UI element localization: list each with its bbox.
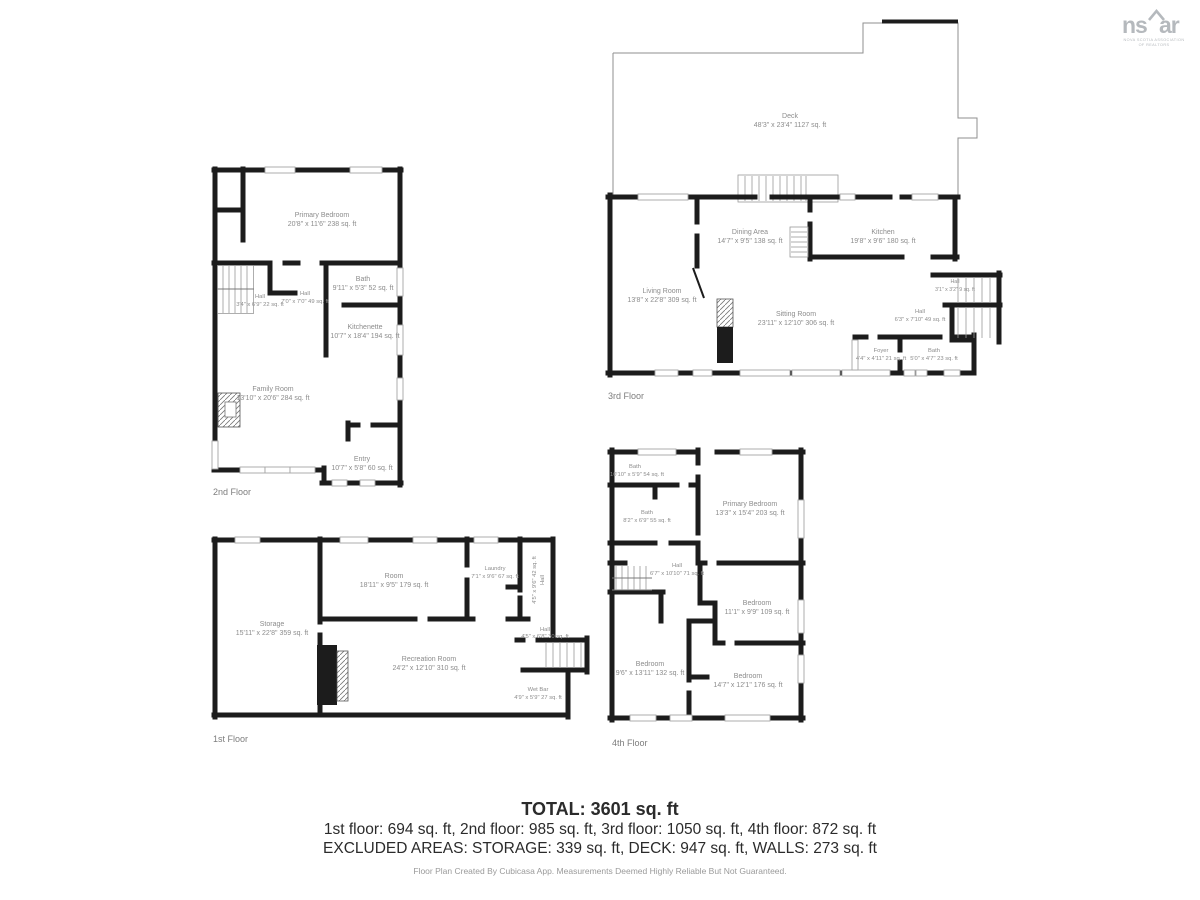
area-summary: TOTAL: 3601 sq. ft 1st floor: 694 sq. ft… <box>0 798 1200 858</box>
room-label: Bath <box>629 464 641 470</box>
second-floor-plan: Primary Bedroom 20'8" x 11'6" 238 sq. ft… <box>210 165 405 505</box>
third-floor-fireplace <box>717 299 733 363</box>
deck-top-rail <box>882 20 958 24</box>
room-dims: 4'5" x 6'8" 30 sq. ft <box>521 634 569 640</box>
room-label: Family Room <box>252 386 293 393</box>
room-label: Primary Bedroom <box>295 212 350 219</box>
room-label: Laundry <box>485 566 506 572</box>
room-dims: 4'5" x 9'6" 42 sq. ft <box>532 556 538 604</box>
room-dims: 18'11" x 9'5" 179 sq. ft <box>360 582 429 589</box>
room-label: Bedroom <box>734 673 763 680</box>
room-label: Hall <box>915 309 925 315</box>
room-dims: 48'3" x 23'4" 1127 sq. ft <box>754 122 827 129</box>
third-floor-room-labels: Deck 48'3" x 23'4" 1127 sq. ft Living Ro… <box>627 113 975 362</box>
room-dims: 8'2" x 6'9" 55 sq. ft <box>623 518 671 524</box>
total-area-text: TOTAL: 3601 sq. ft <box>0 798 1200 820</box>
deck-outline <box>613 23 977 196</box>
room-label: Foyer <box>874 348 889 354</box>
room-label: Kitchenette <box>347 324 382 331</box>
room-dims: 7'1" x 9'6" 67 sq. ft <box>471 574 519 580</box>
room-dims: 4'4" x 4'11" 21 sq. ft <box>856 356 907 362</box>
room-label: Hall <box>672 563 682 569</box>
room-dims: 13'3" x 15'4" 203 sq. ft <box>715 510 784 517</box>
fourth-floor-walls <box>610 450 803 720</box>
room-dims: 6'7" x 10'10" 71 sq. ft <box>650 571 704 577</box>
logo-text-ns: ns <box>1122 12 1147 38</box>
room-dims: 10'7" x 5'8" 60 sq. ft <box>331 465 392 472</box>
first-floor-plan: Storage 15'11" x 22'8" 359 sq. ft Room 1… <box>210 535 595 750</box>
room-label: Entry <box>354 456 371 463</box>
room-dims: 10'7" x 18'4" 194 sq. ft <box>330 333 399 340</box>
room-dims: 19'8" x 9'6" 180 sq. ft <box>850 238 915 245</box>
room-dims: 20'8" x 11'6" 238 sq. ft <box>288 221 357 228</box>
room-dims: 10'10" x 5'9" 54 sq. ft <box>610 472 664 478</box>
room-dims: 7'0" x 7'0" 49 sq. ft <box>281 299 329 305</box>
first-floor-label: 1st Floor <box>213 734 248 744</box>
room-dims: 9'6" x 13'11" 132 sq. ft <box>616 670 685 677</box>
fourth-floor-label: 4th Floor <box>612 738 648 748</box>
living-room-door <box>693 268 704 298</box>
room-label: Primary Bedroom <box>723 501 778 508</box>
room-label: Hall <box>255 294 265 300</box>
room-label: Sitting Room <box>776 311 816 318</box>
room-label: Kitchen <box>871 229 894 236</box>
fourth-floor-plan: Bath 10'10" x 5'9" 54 sq. ft Bath 8'2" x… <box>605 445 815 757</box>
third-floor-label: 3rd Floor <box>608 391 644 401</box>
room-dims: 15'11" x 22'8" 359 sq. ft <box>236 630 309 637</box>
disclaimer-text: Floor Plan Created By Cubicasa App. Meas… <box>0 866 1200 876</box>
room-label: Hall <box>540 575 546 585</box>
room-dims: 3'1" x 3'2" 9 sq. ft <box>935 287 975 293</box>
room-label: Storage <box>260 621 285 628</box>
fourth-floor-stairs <box>612 566 652 590</box>
room-label: Recreation Room <box>402 656 457 663</box>
room-label: Living Room <box>643 288 682 295</box>
room-dims: 14'7" x 12'1" 176 sq. ft <box>713 682 782 689</box>
excluded-areas-text: EXCLUDED AREAS: STORAGE: 339 sq. ft, DEC… <box>0 839 1200 858</box>
room-label: Room <box>385 573 404 580</box>
room-dims: 9'11" x 5'3" 52 sq. ft <box>333 285 394 292</box>
room-dims: 6'3" x 7'10" 49 sq. ft <box>895 317 946 323</box>
room-label: Bedroom <box>636 661 665 668</box>
room-label: Dining Area <box>732 229 768 236</box>
room-label: Bath <box>356 276 371 283</box>
floor-areas-text: 1st floor: 694 sq. ft, 2nd floor: 985 sq… <box>0 820 1200 839</box>
room-label: Bath <box>641 510 653 516</box>
room-label: Wet Bar <box>528 687 549 693</box>
first-floor-fireplace <box>317 645 348 705</box>
third-floor-walls <box>608 195 1000 375</box>
room-dims: 24'2" x 12'10" 310 sq. ft <box>392 665 465 672</box>
first-floor-stairs <box>546 642 581 668</box>
room-dims: 23'11" x 12'10" 306 sq. ft <box>758 320 834 327</box>
room-dims: 11'1" x 9'9" 109 sq. ft <box>725 609 790 616</box>
room-label: Hall <box>951 279 960 285</box>
room-label: Deck <box>782 113 798 120</box>
room-dims: 13'8" x 22'8" 309 sq. ft <box>627 297 696 304</box>
room-label: Hall <box>540 627 550 633</box>
logo-tagline-2: OF REALTORS <box>1139 43 1170 47</box>
room-dims: 13'10" x 20'6" 284 sq. ft <box>236 395 309 402</box>
room-label: Bath <box>928 348 940 354</box>
room-dims: 3'4" x 6'9" 22 sq. ft <box>236 302 284 308</box>
room-label: Bedroom <box>743 600 772 607</box>
logo-tagline-1: NOVA SCOTIA ASSOCIATION <box>1124 38 1185 42</box>
third-floor-plan: Deck 48'3" x 23'4" 1127 sq. ft Living Ro… <box>600 10 1010 405</box>
room-dims: 4'9" x 5'9" 27 sq. ft <box>514 695 562 701</box>
nsar-logo: ns ar NOVA SCOTIA ASSOCIATION OF REALTOR… <box>1112 6 1198 52</box>
logo-text-ar: ar <box>1159 12 1180 38</box>
floor-plan-page: ns ar NOVA SCOTIA ASSOCIATION OF REALTOR… <box>0 0 1200 900</box>
second-floor-room-labels: Primary Bedroom 20'8" x 11'6" 238 sq. ft… <box>236 212 399 472</box>
interior-stairs <box>790 227 808 257</box>
third-floor-windows <box>638 194 960 376</box>
room-dims: 14'7" x 9'5" 138 sq. ft <box>717 238 782 245</box>
room-dims: 5'0" x 4'7" 23 sq. ft <box>910 356 958 362</box>
second-floor-label: 2nd Floor <box>213 487 251 497</box>
room-label: Hall <box>300 291 310 297</box>
